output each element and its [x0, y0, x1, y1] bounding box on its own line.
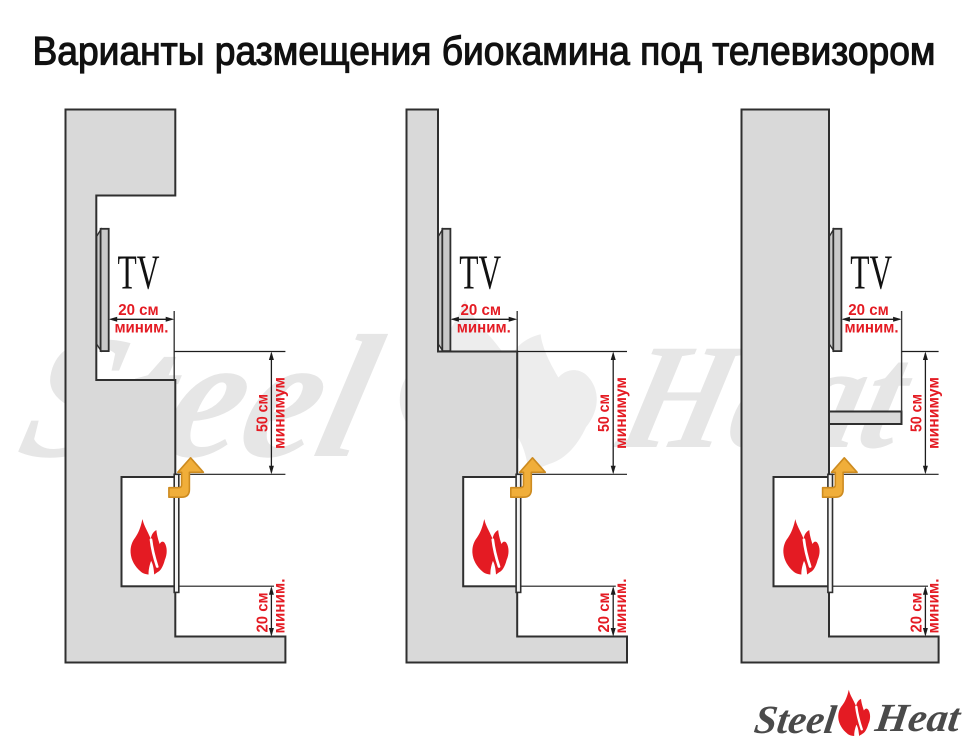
svg-text:TV: TV: [459, 247, 501, 300]
svg-text:Steel: Steel: [752, 697, 840, 742]
svg-text:минимум: минимум: [271, 377, 288, 449]
svg-text:минимум: минимум: [925, 377, 942, 449]
svg-text:50 см: 50 см: [254, 394, 271, 432]
svg-text:минимум: минимум: [613, 377, 630, 449]
svg-text:50 см: 50 см: [908, 394, 925, 432]
svg-text:20 см: 20 см: [118, 302, 159, 319]
svg-text:TV: TV: [118, 247, 160, 300]
svg-text:миним.: миним.: [457, 319, 511, 336]
svg-text:миним.: миним.: [271, 579, 288, 634]
svg-text:Steel: Steel: [4, 299, 397, 494]
svg-text:миним.: миним.: [613, 579, 630, 634]
svg-text:TV: TV: [850, 247, 892, 300]
svg-text:20 см: 20 см: [461, 302, 502, 319]
svg-text:20 см: 20 см: [848, 302, 889, 319]
svg-text:20 см: 20 см: [254, 593, 271, 633]
svg-text:Heat: Heat: [872, 695, 965, 740]
svg-text:50 см: 50 см: [596, 394, 613, 432]
svg-text:миним.: миним.: [925, 579, 942, 634]
svg-text:миним.: миним.: [114, 319, 168, 336]
svg-text:20 см: 20 см: [596, 593, 613, 633]
svg-text:миним.: миним.: [845, 319, 899, 336]
svg-text:20 см: 20 см: [908, 593, 925, 633]
svg-text:Варианты размещения биокамина: Варианты размещения биокамина под телеви…: [33, 30, 936, 74]
